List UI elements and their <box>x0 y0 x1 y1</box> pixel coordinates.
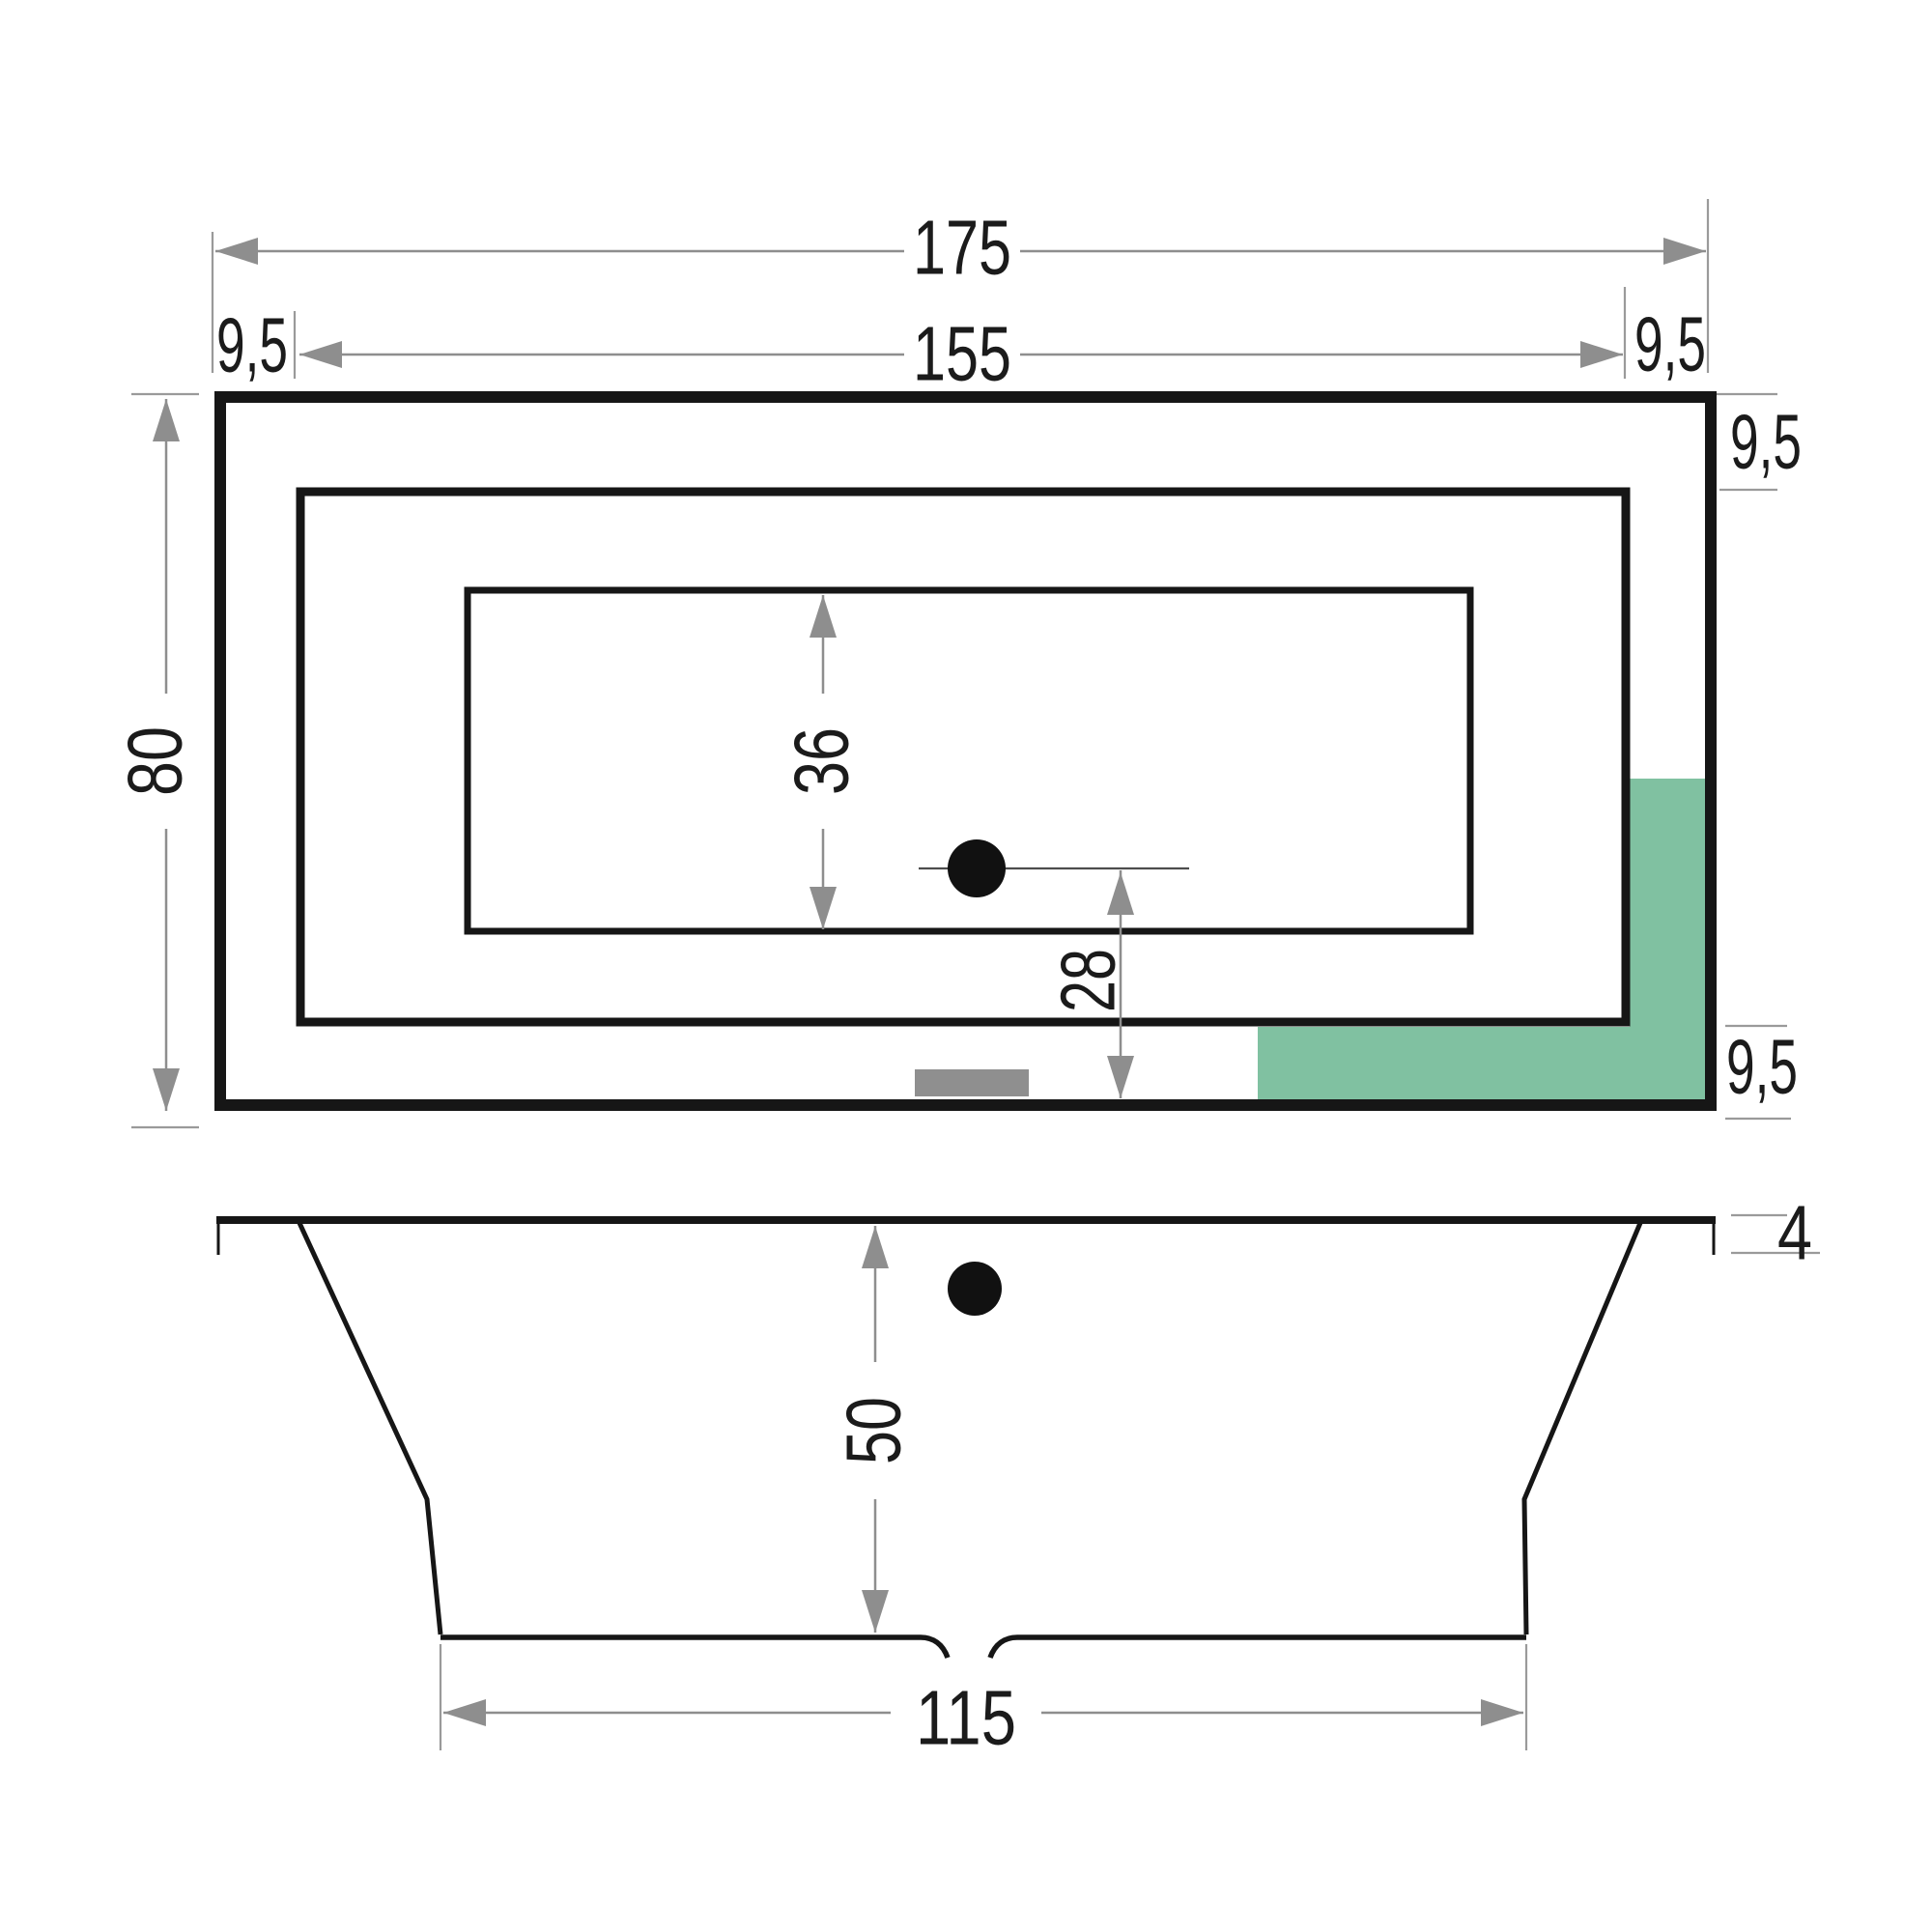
tub-outer-edge <box>220 397 1711 1105</box>
arrowhead-right-icon <box>1481 1699 1523 1726</box>
arrowhead-down-icon <box>810 887 837 929</box>
arrowhead-down-icon <box>1107 1056 1134 1098</box>
tub-rim-inner-edge <box>300 492 1626 1022</box>
dim-rim-edge-height-label: 4 <box>1777 1190 1812 1276</box>
tub-wall-left <box>299 1223 440 1634</box>
arrowhead-left-icon <box>443 1699 486 1726</box>
dim-rim-left-label: 9,5 <box>216 302 288 388</box>
dim-rim-bottom-label: 9,5 <box>1726 1024 1798 1110</box>
tub-bottom-line <box>440 1637 1526 1658</box>
arrowhead-left-icon <box>299 341 342 368</box>
arrowhead-up-icon <box>1107 872 1134 915</box>
front-view <box>216 1220 1716 1658</box>
tub-wall-right <box>1524 1223 1640 1634</box>
dim-inner-length-label: 155 <box>913 311 1011 397</box>
drain-icon <box>948 1262 1002 1316</box>
arrowhead-down-icon <box>862 1590 889 1633</box>
dim-overall-length-label: 175 <box>913 205 1011 291</box>
arrowhead-right-icon <box>1663 238 1706 265</box>
arrowhead-up-icon <box>862 1226 889 1268</box>
arrowhead-up-icon <box>810 595 837 638</box>
arrowhead-left-icon <box>215 238 258 265</box>
dim-rim-top-label: 9,5 <box>1730 399 1802 485</box>
dim-floor-length-label: 115 <box>916 1675 1016 1761</box>
dim-depth-label: 50 <box>831 1397 917 1464</box>
bathtub-dimension-diagram: 175 155 9,5 9,5 9,5 9,5 80 <box>0 0 1932 1932</box>
drain-icon <box>948 839 1006 897</box>
arrowhead-right-icon <box>1580 341 1623 368</box>
top-view-dimensions: 175 155 9,5 9,5 9,5 9,5 80 <box>112 199 1803 1127</box>
dim-drain-offset-label: 28 <box>1045 949 1131 1012</box>
overflow-slot <box>915 1069 1029 1096</box>
corner-highlight-area <box>1258 779 1705 1099</box>
front-view-dimensions: 50 115 4 <box>440 1190 1820 1761</box>
arrowhead-up-icon <box>153 399 180 441</box>
dim-floor-width-label: 36 <box>779 727 865 795</box>
dim-rim-right-label: 9,5 <box>1634 301 1706 387</box>
drawing-canvas: 175 155 9,5 9,5 9,5 9,5 80 <box>0 0 1932 1932</box>
dim-overall-width-label: 80 <box>112 726 198 796</box>
arrowhead-down-icon <box>153 1068 180 1111</box>
top-view <box>220 397 1711 1105</box>
